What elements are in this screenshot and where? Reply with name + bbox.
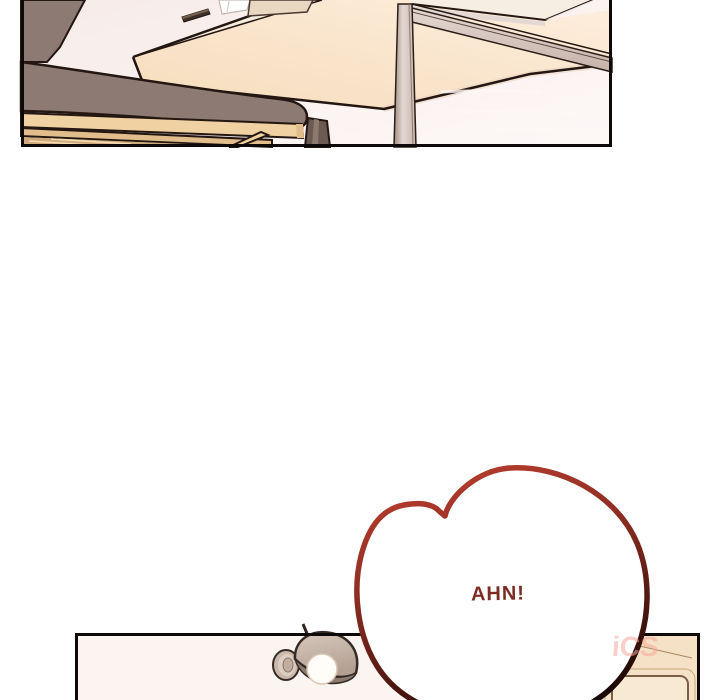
speech-bubble-text: AHN! (457, 581, 539, 606)
panel-lamp-border-right (697, 633, 700, 700)
comic-artwork (0, 0, 720, 700)
panel-desk-border-right (609, 0, 612, 147)
panel-desk-border-bottom (21, 144, 612, 147)
panel-desk-border-left (21, 0, 24, 147)
panel-lamp-border-left (75, 633, 78, 700)
door-panel (612, 676, 688, 700)
watermark: iCS (611, 631, 660, 663)
panel-desk-scene (21, 0, 612, 147)
lamp-bulb (307, 654, 337, 684)
lamp-mount-inner (283, 658, 293, 672)
wood-rail-upper-end (296, 124, 304, 138)
comic-page: AHN! iCS (0, 0, 720, 700)
